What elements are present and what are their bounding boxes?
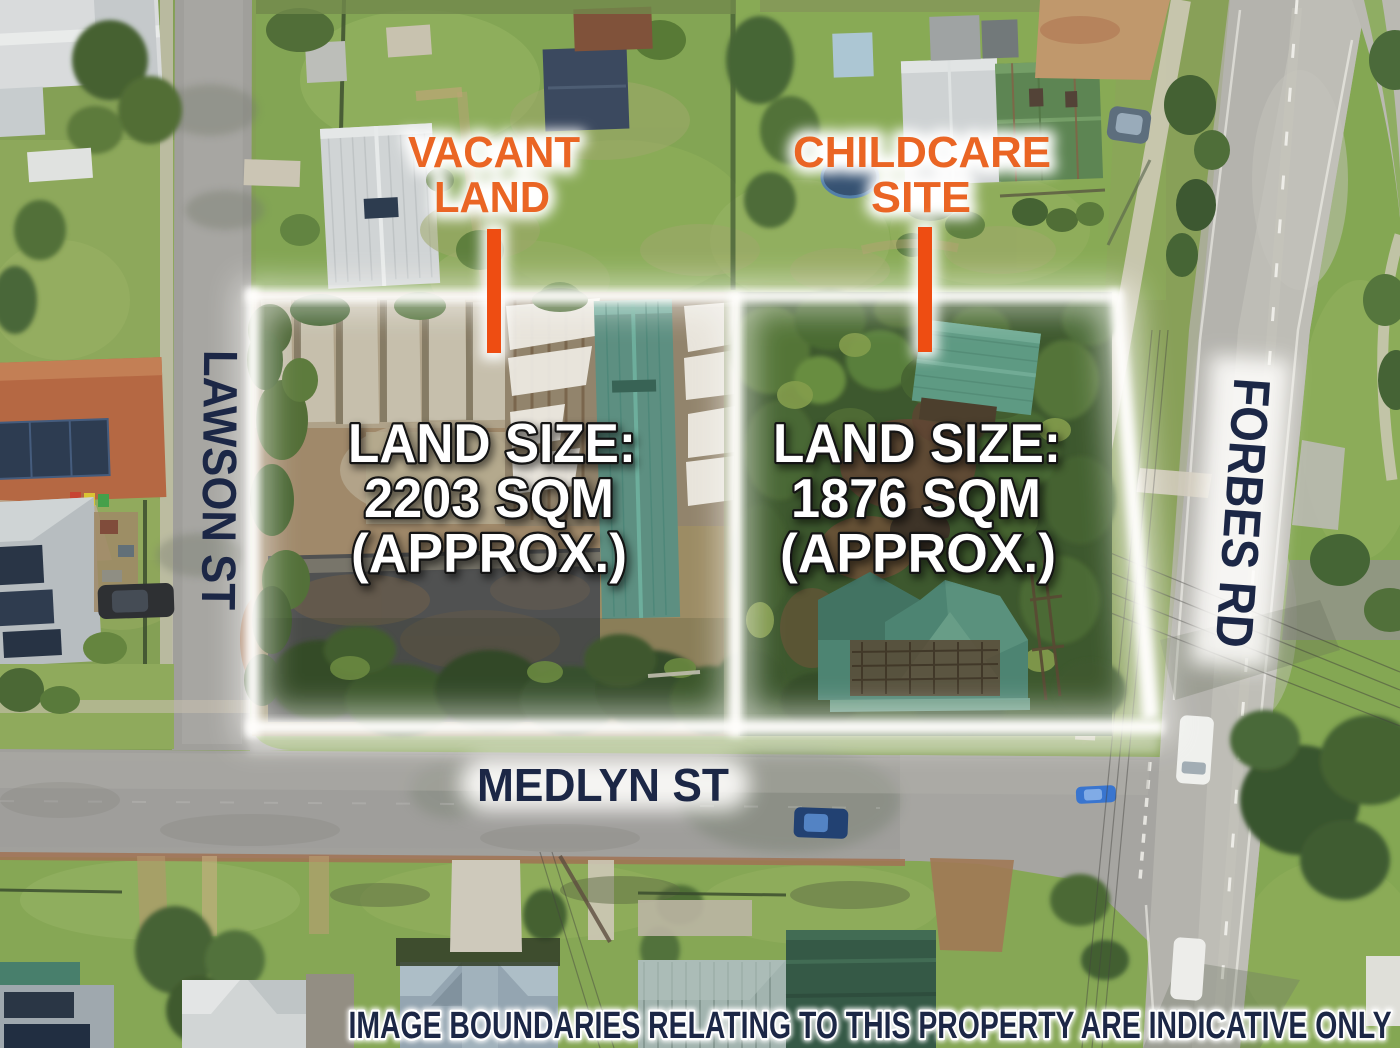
svg-text:IMAGE BOUNDARIES RELATING TO T: IMAGE BOUNDARIES RELATING TO THIS PROPER… — [349, 1005, 1392, 1047]
svg-text:(APPROX.): (APPROX.) — [780, 522, 1056, 584]
svg-text:1876 SQM: 1876 SQM — [791, 467, 1041, 529]
svg-text:LAND SIZE:: LAND SIZE: — [348, 412, 636, 474]
svg-text:LAND SIZE:: LAND SIZE: — [773, 412, 1061, 474]
svg-text:SITE: SITE — [871, 173, 971, 222]
svg-text:LAND: LAND — [434, 173, 550, 222]
svg-text:(APPROX.): (APPROX.) — [351, 522, 627, 584]
svg-text:CHILDCARE: CHILDCARE — [793, 128, 1051, 177]
svg-text:VACANT: VACANT — [408, 128, 580, 177]
svg-text:MEDLYN ST: MEDLYN ST — [477, 759, 729, 811]
svg-text:2203 SQM: 2203 SQM — [364, 467, 614, 529]
svg-text:LAWSON ST: LAWSON ST — [191, 350, 246, 610]
